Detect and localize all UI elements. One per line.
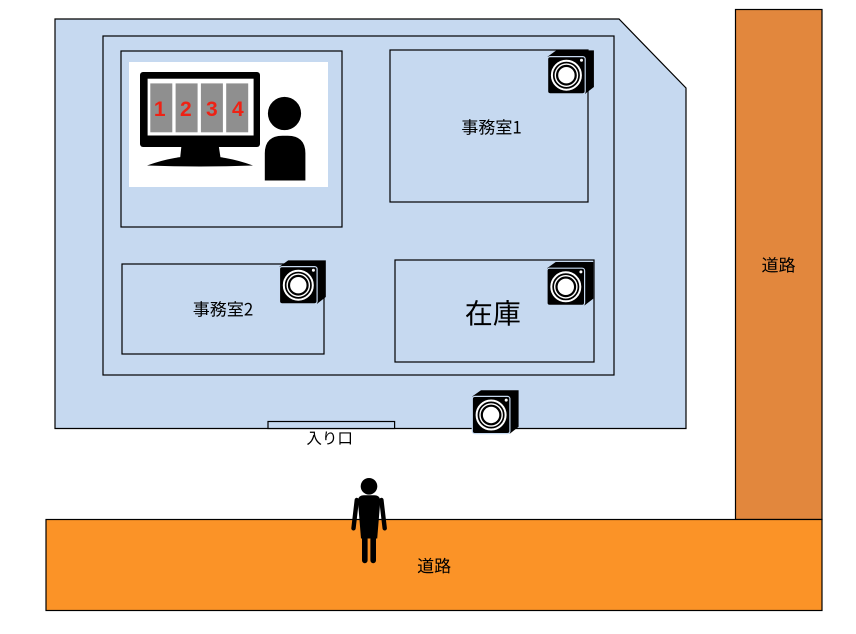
svg-text:4: 4	[232, 98, 244, 121]
svg-text:2: 2	[180, 98, 192, 121]
svg-text:3: 3	[206, 98, 218, 121]
svg-text:1: 1	[154, 98, 166, 121]
